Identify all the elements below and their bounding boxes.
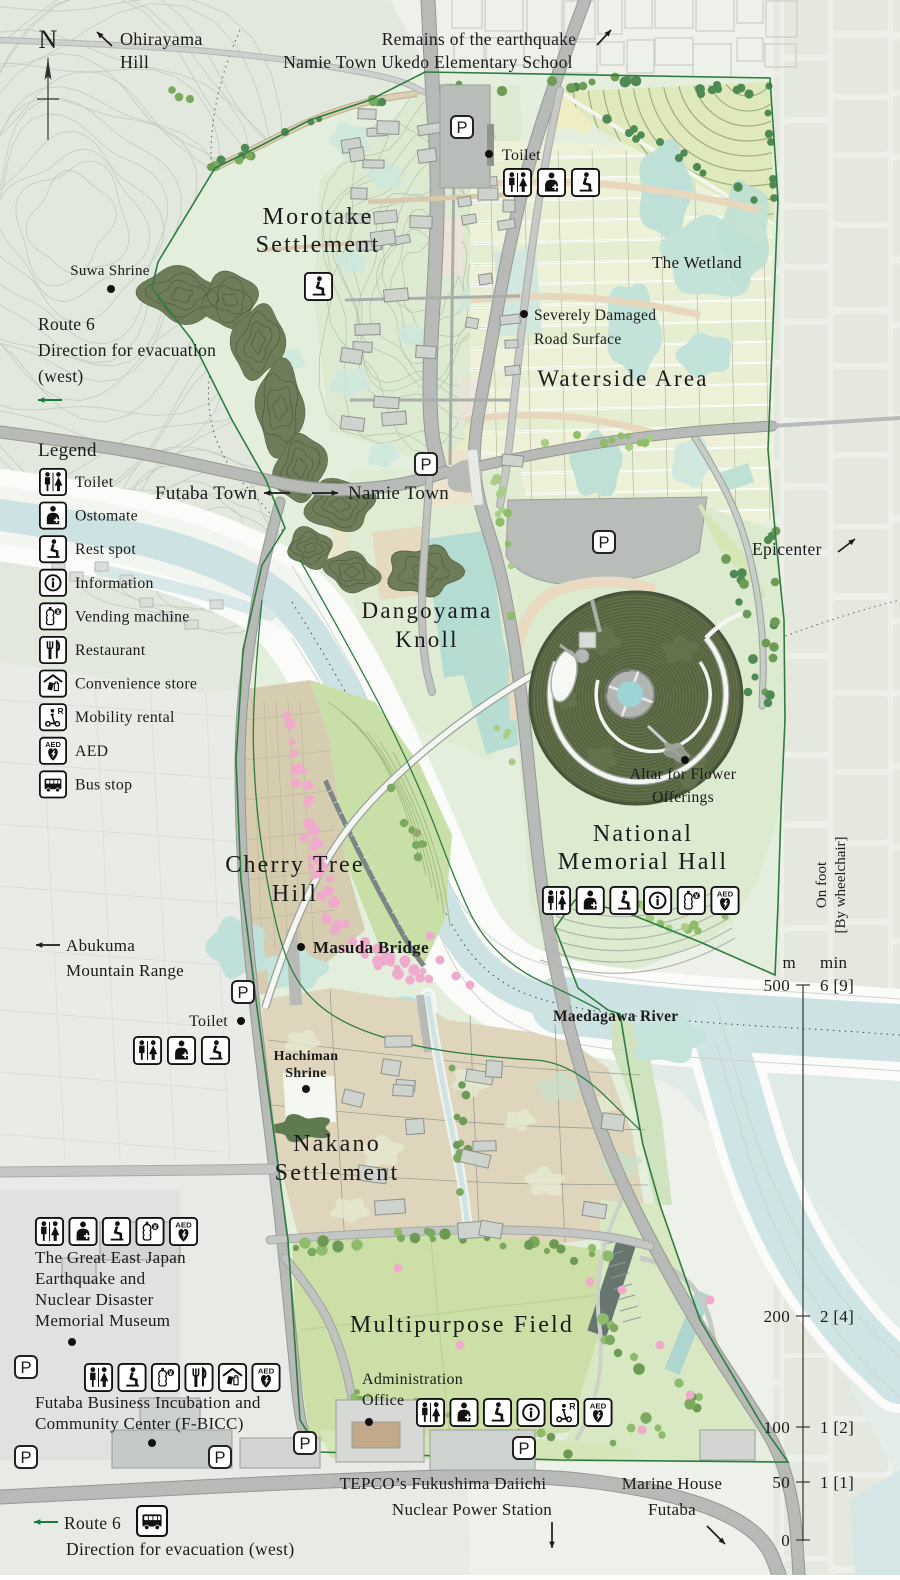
svg-text:Toilet: Toilet [502, 147, 541, 164]
svg-text:Cherry Tree: Cherry Tree [225, 852, 365, 878]
svg-text:Altar for Flower: Altar for Flower [630, 766, 737, 783]
svg-text:100: 100 [764, 1418, 790, 1437]
svg-text:Epicenter: Epicenter [752, 539, 822, 559]
svg-text:On foot: On foot [814, 861, 830, 908]
svg-text:Toilet: Toilet [75, 474, 114, 491]
svg-text:1 [1]: 1 [1] [820, 1473, 854, 1492]
svg-text:Nuclear Disaster: Nuclear Disaster [35, 1290, 154, 1309]
svg-text:Namie Town: Namie Town [348, 483, 449, 504]
svg-text:Masuda Bridge: Masuda Bridge [313, 938, 429, 957]
svg-text:Suwa Shrine: Suwa Shrine [70, 263, 150, 279]
svg-text:Nuclear Power Station: Nuclear Power Station [392, 1500, 552, 1519]
svg-text:Abukuma: Abukuma [66, 936, 135, 955]
svg-text:Settlement: Settlement [256, 232, 381, 258]
svg-text:6 [9]: 6 [9] [820, 976, 854, 995]
svg-text:Road Surface: Road Surface [534, 331, 622, 348]
svg-text:Administration: Administration [362, 1371, 463, 1388]
svg-text:Dangoyama: Dangoyama [362, 598, 493, 623]
svg-text:min: min [820, 953, 848, 972]
svg-text:Route 6: Route 6 [64, 1513, 121, 1533]
svg-text:Legend: Legend [38, 440, 97, 461]
svg-text:Community Center (F-BICC): Community Center (F-BICC) [35, 1414, 244, 1433]
svg-text:Ostomate: Ostomate [75, 508, 138, 525]
svg-text:Severely Damaged: Severely Damaged [534, 307, 656, 324]
svg-text:Nakano: Nakano [293, 1131, 381, 1157]
svg-text:(west): (west) [38, 366, 84, 386]
svg-text:Hill: Hill [272, 881, 318, 907]
svg-text:Settlement: Settlement [275, 1160, 400, 1186]
svg-text:[By wheelchair]: [By wheelchair] [833, 836, 849, 933]
svg-text:Restaurant: Restaurant [75, 642, 146, 659]
svg-text:Memorial Museum: Memorial Museum [35, 1311, 170, 1330]
svg-text:Futaba Town: Futaba Town [155, 483, 258, 504]
svg-text:1 [2]: 1 [2] [820, 1418, 854, 1437]
svg-text:Toilet: Toilet [189, 1013, 228, 1030]
svg-text:Rest spot: Rest spot [75, 541, 136, 558]
svg-text:Marine House: Marine House [622, 1474, 722, 1493]
svg-text:Ohirayama: Ohirayama [120, 29, 203, 49]
svg-text:Memorial Hall: Memorial Hall [558, 849, 729, 875]
svg-text:Information: Information [75, 575, 154, 592]
svg-text:Namie Town Ukedo Elementary Sc: Namie Town Ukedo Elementary School [283, 52, 573, 72]
svg-text:Direction for evacuation (west: Direction for evacuation (west) [66, 1539, 294, 1559]
svg-text:Futaba Business Incubation and: Futaba Business Incubation and [35, 1393, 261, 1412]
svg-text:m: m [782, 953, 796, 972]
svg-text:Futaba: Futaba [648, 1500, 696, 1519]
svg-text:Shrine: Shrine [285, 1066, 326, 1081]
svg-text:50: 50 [772, 1473, 790, 1492]
svg-text:The Wetland: The Wetland [652, 253, 742, 272]
svg-text:500: 500 [764, 976, 790, 995]
svg-text:National: National [593, 821, 693, 847]
svg-text:Direction for evacuation: Direction for evacuation [38, 340, 216, 360]
svg-text:Earthquake and: Earthquake and [35, 1269, 146, 1288]
svg-text:0: 0 [781, 1531, 790, 1550]
svg-text:Office: Office [362, 1392, 404, 1409]
svg-text:Multipurpose Field: Multipurpose Field [350, 1312, 574, 1338]
svg-text:Bus stop: Bus stop [75, 776, 132, 793]
svg-text:Maedagawa River: Maedagawa River [553, 1008, 678, 1025]
svg-text:Hill: Hill [120, 52, 149, 72]
svg-text:The Great East Japan: The Great East Japan [35, 1248, 186, 1267]
svg-text:Remains of the earthquake: Remains of the earthquake [382, 29, 577, 49]
svg-text:Route 6: Route 6 [38, 314, 95, 334]
svg-text:Mobility rental: Mobility rental [75, 709, 175, 726]
svg-text:Convenience store: Convenience store [75, 676, 197, 693]
svg-text:200: 200 [764, 1307, 790, 1326]
svg-text:Vending machine: Vending machine [75, 608, 190, 625]
svg-text:Morotake: Morotake [263, 204, 374, 230]
svg-text:Offerings: Offerings [652, 789, 714, 806]
svg-text:N: N [38, 25, 57, 54]
svg-text:Mountain Range: Mountain Range [66, 961, 184, 980]
svg-text:TEPCO’s Fukushima Daiichi: TEPCO’s Fukushima Daiichi [340, 1474, 547, 1493]
svg-text:AED: AED [75, 743, 108, 760]
svg-text:Knoll: Knoll [395, 627, 458, 652]
svg-text:Waterside Area: Waterside Area [537, 366, 708, 391]
svg-text:Hachiman: Hachiman [274, 1049, 339, 1064]
svg-text:2 [4]: 2 [4] [820, 1307, 854, 1326]
